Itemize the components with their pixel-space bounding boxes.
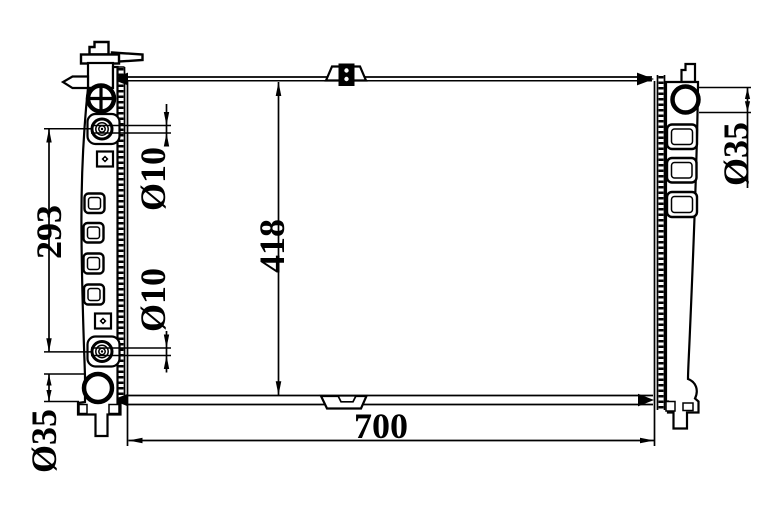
upper-port-10mm bbox=[88, 114, 120, 144]
lower-square-hole bbox=[95, 314, 111, 329]
lower-square-pin-hole bbox=[102, 320, 104, 322]
dim-293-label: 293 bbox=[29, 205, 69, 259]
left-hose-port-35mm bbox=[84, 374, 112, 402]
top-bracket-hole-lower bbox=[344, 77, 348, 81]
dim-700-label: 700 bbox=[354, 406, 408, 446]
upper-port-center bbox=[101, 128, 103, 130]
dim-o10-bottom-label: Ø10 bbox=[133, 268, 173, 332]
lower-port-center bbox=[101, 350, 103, 352]
top-bracket-pad bbox=[339, 64, 355, 87]
right-hose-port-35mm bbox=[673, 87, 699, 113]
left-drain-clamp bbox=[79, 405, 87, 414]
top-bracket-hole-upper bbox=[344, 68, 348, 72]
right-drain-boss bbox=[683, 403, 693, 411]
dim-o10-top-label: Ø10 bbox=[133, 147, 173, 211]
right-drain-clamp bbox=[666, 402, 675, 412]
upper-square-hole bbox=[97, 152, 113, 167]
lower-port-10mm bbox=[88, 337, 120, 367]
dim-418-label: 418 bbox=[252, 219, 292, 273]
dim-o35-right-label: Ø35 bbox=[716, 122, 756, 186]
upper-square-pin-hole bbox=[104, 158, 106, 160]
left-slot-1 bbox=[85, 194, 105, 214]
left-drain-boss bbox=[109, 405, 119, 414]
right-tank-slots bbox=[667, 125, 697, 218]
left-slot-2 bbox=[84, 223, 104, 243]
radiator-cap bbox=[88, 86, 114, 112]
dim-o35-left-label: Ø35 bbox=[24, 409, 64, 473]
left-slot-3 bbox=[84, 254, 104, 274]
bottom-bracket-notch bbox=[338, 396, 356, 402]
radiator-technical-drawing: 418 293 Ø10 Ø10 bbox=[0, 0, 768, 516]
left-slot-4 bbox=[84, 285, 104, 305]
